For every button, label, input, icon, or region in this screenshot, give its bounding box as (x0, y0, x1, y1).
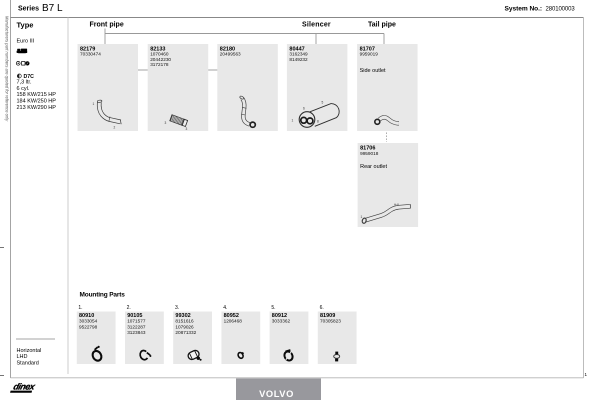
svg-text:20499563: 20499563 (220, 52, 241, 57)
svg-text:LHD: LHD (17, 354, 28, 360)
svg-text:5.: 5. (271, 305, 275, 311)
svg-text:9959019: 9959019 (360, 52, 379, 57)
svg-text:9522798: 9522798 (79, 324, 98, 329)
svg-text:1.: 1. (78, 305, 82, 311)
svg-text:Mounting Parts: Mounting Parts (80, 292, 126, 299)
svg-text:2.: 2. (127, 305, 131, 311)
svg-text:3033362: 3033362 (272, 319, 291, 324)
svg-text:3: 3 (165, 121, 167, 125)
svg-text:1: 1 (292, 119, 294, 123)
svg-text:158 KW/215 HP: 158 KW/215 HP (17, 92, 57, 98)
svg-text:Horizontal: Horizontal (17, 348, 42, 354)
svg-text:Front pipe: Front pipe (90, 22, 124, 29)
svg-text:System No.:: System No.: (505, 6, 543, 13)
svg-text:Side outlet: Side outlet (360, 68, 386, 74)
svg-text:1: 1 (361, 215, 363, 219)
svg-text:8149232: 8149232 (289, 57, 308, 62)
svg-text:70305823: 70305823 (320, 319, 341, 324)
svg-text:280100003: 280100003 (546, 7, 576, 13)
svg-text:7,3 ltr.: 7,3 ltr. (17, 80, 32, 86)
svg-text:Rear outlet: Rear outlet (360, 164, 387, 170)
svg-text:1206468: 1206468 (224, 319, 243, 324)
svg-text:6.: 6. (320, 305, 324, 311)
svg-text:H-8: H-8 (394, 203, 399, 207)
svg-text:213 KW/290 HP: 213 KW/290 HP (17, 105, 57, 111)
svg-text:Euro III: Euro III (17, 38, 35, 44)
svg-text:3122287: 3122287 (127, 324, 146, 329)
svg-text:6: 6 (303, 107, 305, 111)
svg-text:3123843: 3123843 (127, 330, 146, 335)
svg-text:Tail pipe: Tail pipe (368, 22, 396, 29)
svg-text:Manufacturers part numbers are: Manufacturers part numbers are quoted fo… (4, 16, 9, 122)
svg-text:3.: 3. (175, 305, 179, 311)
svg-text:4.: 4. (223, 305, 227, 311)
svg-text:5: 5 (322, 101, 324, 105)
svg-text:Type: Type (17, 21, 34, 30)
svg-text:1079026: 1079026 (175, 324, 194, 329)
svg-text:8151616: 8151616 (175, 319, 194, 324)
svg-text:1071577: 1071577 (127, 319, 146, 324)
svg-text:184 KW/250 HP: 184 KW/250 HP (17, 99, 57, 105)
svg-text:20871332: 20871332 (175, 330, 196, 335)
svg-text:Series: Series (18, 6, 39, 13)
svg-text:6 cyl.: 6 cyl. (17, 86, 30, 92)
svg-text:3: 3 (186, 127, 188, 131)
svg-text:3172178: 3172178 (150, 62, 169, 67)
svg-text:dinex: dinex (12, 382, 37, 392)
svg-text:70330474: 70330474 (80, 52, 101, 57)
svg-text:VOLVO: VOLVO (259, 389, 294, 399)
svg-text:1: 1 (93, 102, 95, 106)
svg-text:Silencer: Silencer (302, 22, 331, 29)
svg-text:3033054: 3033054 (79, 319, 98, 324)
svg-text:1: 1 (585, 372, 588, 377)
svg-text:8: 8 (317, 120, 319, 124)
svg-text:B7 L: B7 L (42, 3, 63, 14)
svg-text:Standard: Standard (17, 360, 39, 366)
svg-text:9959018: 9959018 (360, 151, 379, 156)
svg-text:2: 2 (114, 126, 116, 130)
